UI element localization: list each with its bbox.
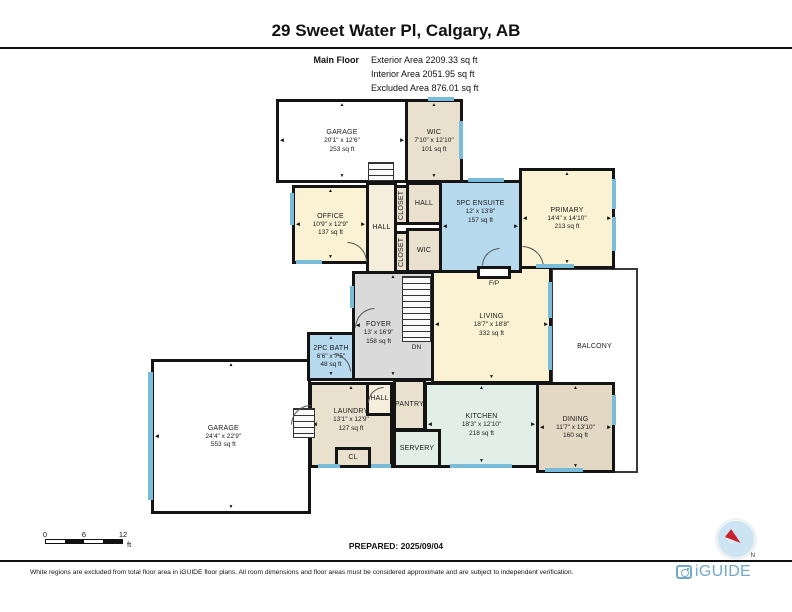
room-kitchen: ▲▼◀▶KITCHEN18'3" x 12'10"218 sq ft [424,382,539,468]
window [536,264,574,268]
room-area: 160 sq ft [563,432,588,440]
room-dim: 20'1" x 12'6" [324,137,360,145]
room-dim: 11'7" x 13'10" [556,424,595,432]
room-name: OFFICE [317,212,344,221]
window [371,464,391,468]
room-label: WIC7'10" x 12'10"101 sq ft [408,102,460,180]
room-label: WIC [409,231,439,270]
room-hall-corridor: HALL [366,182,397,274]
scale-tick: 6 [82,530,86,539]
room-label: FOYER13' x 16'9"158 sq ft [355,293,402,374]
room-name: CL [348,453,357,462]
room-label: HALL [409,185,439,222]
room-label: GARAGE24'4" x 22'9"553 sq ft [154,362,293,511]
room-dim: 18'3" x 12'10" [462,421,501,429]
interior-area: Interior Area 2051.95 sq ft [371,69,479,79]
room-garage-main: ▲▼◀▶GARAGE24'4" x 22'9"553 sq ft [151,359,311,514]
room-name: LIVING [479,312,503,321]
dimension-arrow-icon: ▲ [391,275,396,280]
room-dim: 14'4" x 14'10" [547,215,586,223]
room-wic-upper: ▲▼WIC7'10" x 12'10"101 sq ft [405,99,463,183]
room-hall-mid: HALL [406,182,442,225]
room-label: CLOSET [397,188,406,222]
window [548,326,552,370]
window [548,282,552,318]
room-dim: 24'4" x 22'9" [205,433,241,441]
room-name: WIC [427,128,441,137]
room-ensuite: ◀▶5PC ENSUITE12' x 13'8"157 sq ft [439,180,522,273]
room-dim: 18'7" x 18'8" [474,321,510,329]
room-name: 5PC ENSUITE [456,199,504,208]
scale-tick: 12 [119,530,127,539]
scale-tick: 0 [43,530,47,539]
room-label: CL [338,450,368,465]
room-name: WIC [417,246,431,255]
room-area: 127 sq ft [339,425,364,433]
room-label: DINING11'7" x 13'10"160 sq ft [539,385,612,470]
room-bath-2pc: ▲▼2PC BATH6'6" x 7'5"48 sq ft [307,332,355,381]
window [450,464,512,468]
room-area: 213 sq ft [555,223,580,231]
room-name: HALL [372,223,390,232]
header-divider [0,47,792,49]
window [350,286,354,308]
room-name: CLOSET [397,190,406,219]
prepared-date: PREPARED: 2025/09/04 [0,541,792,551]
room-name: HALL [415,199,433,208]
room-name: PRIMARY [550,206,583,215]
room-label: 5PC ENSUITE12' x 13'8"157 sq ft [442,188,519,236]
room-name: DINING [563,415,589,424]
window [296,260,322,264]
room-name: GARAGE [208,424,239,433]
fireplace-label: F/P [477,280,511,287]
room-dim: 10'9" x 12'9" [313,221,349,229]
stairs [368,162,394,181]
stairs [402,276,431,342]
room-area: 253 sq ft [330,146,355,154]
room-area: 137 sq ft [318,229,343,237]
room-name: CLOSET [397,237,406,266]
iguide-camera-icon [676,565,692,579]
room-dim: 7'10" x 12'10" [414,137,453,145]
iguide-logo: iGUIDE [676,563,751,581]
window [545,468,583,472]
disclaimer-text: White regions are excluded from total fl… [30,569,630,576]
room-dim: 13' x 16'9" [364,329,394,337]
room-servery: SERVERY [393,429,441,468]
window [612,217,616,251]
room-pantry: PANTRY [393,379,426,431]
exterior-area: Exterior Area 2209.33 sq ft [371,55,479,65]
room-name: KITCHEN [465,412,497,421]
room-area: 218 sq ft [469,430,494,438]
room-name: 2PC BATH [313,344,348,353]
room-wic-mid: WIC [406,228,442,273]
dimension-arrow-icon: ▲ [349,386,354,391]
compass-needle [725,529,744,547]
window [468,178,504,182]
window [459,121,463,159]
floor-label: Main Floor [313,55,359,65]
room-dim: 12' x 13'8" [466,208,496,216]
room-label: SERVERY [396,432,438,465]
room-label: HALL [369,185,394,271]
room-name: PANTRY [395,400,424,409]
room-area: 101 sq ft [422,146,447,154]
window [612,395,616,425]
fireplace [477,266,511,279]
window [148,372,153,500]
window [612,179,616,209]
room-area: 158 sq ft [366,338,391,346]
floorplan-page: 29 Sweet Water Pl, Calgary, AB Main Floo… [0,0,792,612]
room-label: CLOSET [397,234,406,270]
footer-divider [0,560,792,562]
room-area: 553 sq ft [211,441,236,449]
floor-area-summary: Main Floor Exterior Area 2209.33 sq ft I… [0,55,792,97]
compass-icon: N [718,521,754,557]
window [428,97,454,101]
room-area: 332 sq ft [479,330,504,338]
room-dining: ▲▼◀▶DINING11'7" x 13'10"160 sq ft [536,382,615,473]
stairs-dn-label: DN [402,344,431,351]
window [318,464,340,468]
room-name: LAUNDRY [334,407,369,416]
room-label: KITCHEN18'3" x 12'10"218 sq ft [427,385,536,465]
excluded-area: Excluded Area 876.01 sq ft [371,83,479,93]
iguide-wordmark: iGUIDE [695,563,751,581]
room-label: PANTRY [396,382,423,428]
room-area: 157 sq ft [468,217,493,225]
page-title: 29 Sweet Water Pl, Calgary, AB [0,21,792,41]
room-name: BALCONY [577,342,612,351]
room-closet-main: CL [335,447,371,468]
window [290,193,294,225]
compass-north-label: N [751,553,755,559]
room-name: SERVERY [400,444,435,453]
room-dim: 13'1" x 12'9" [333,416,369,424]
room-name: GARAGE [326,128,357,137]
